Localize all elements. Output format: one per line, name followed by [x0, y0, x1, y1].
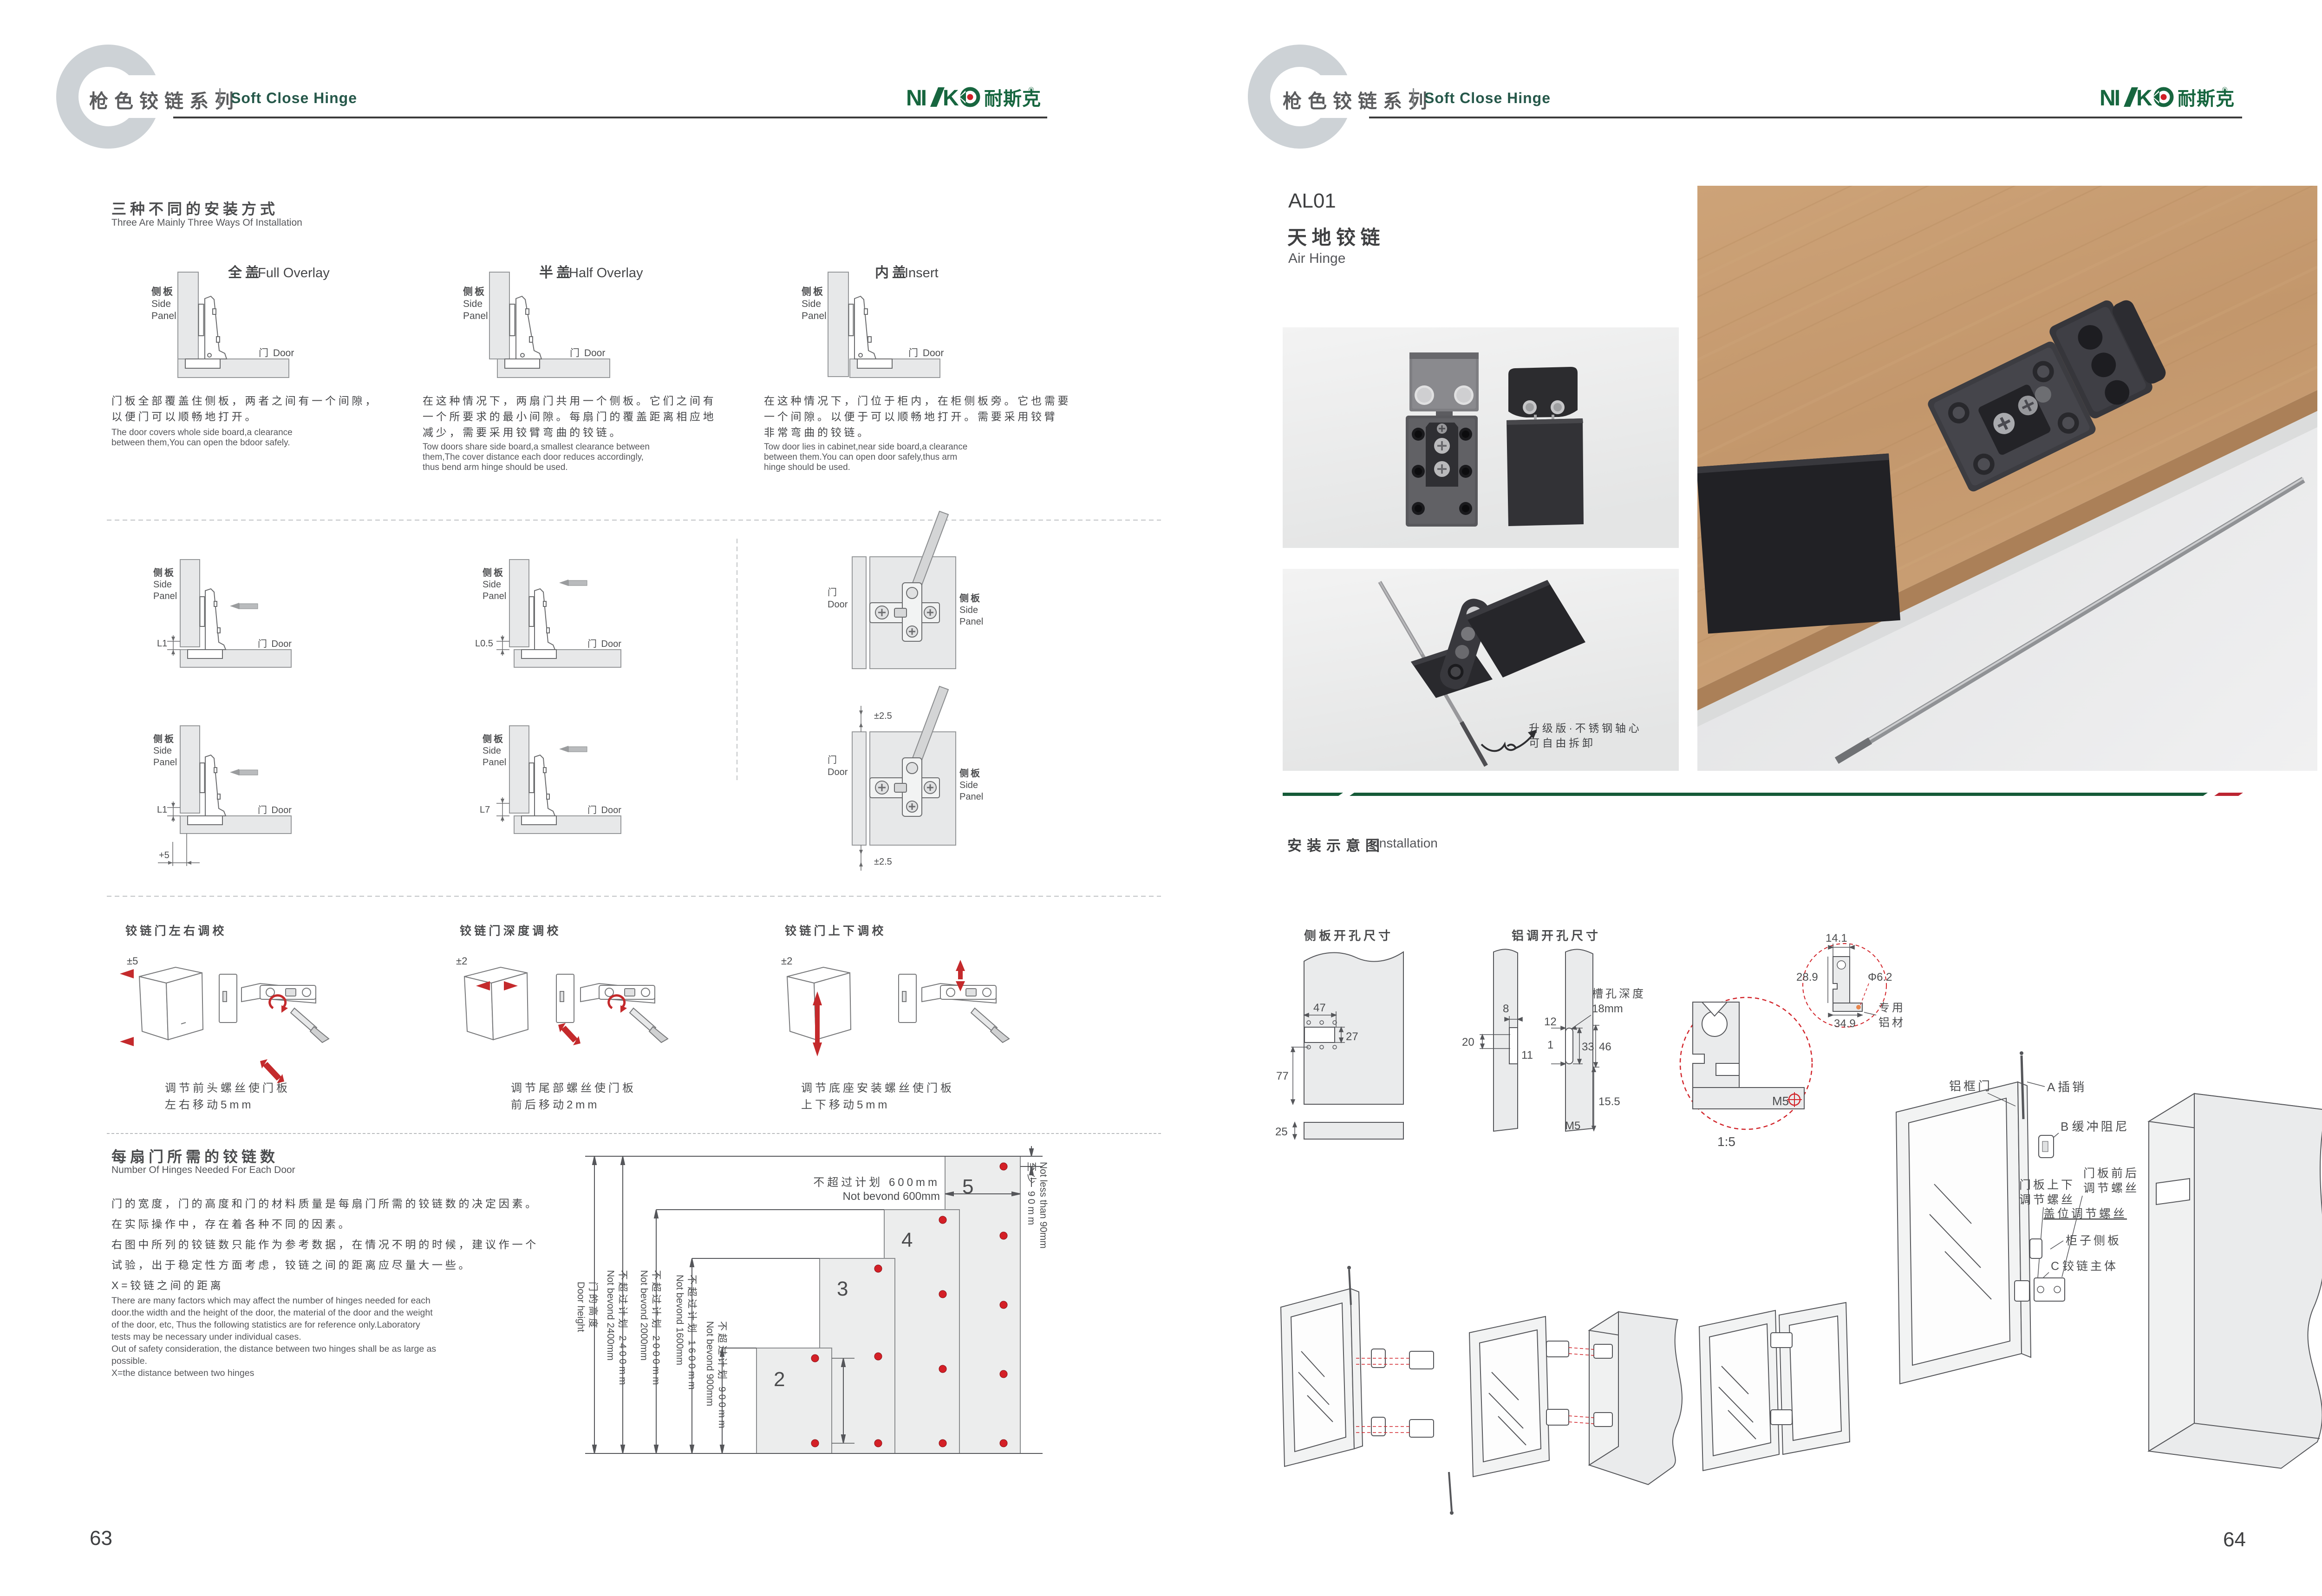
svg-text:不超过计划 2400mm: 不超过计划 2400mm [617, 1270, 628, 1388]
svg-text:门 Door: 门 Door [258, 638, 292, 649]
svg-text:侧板: 侧板 [463, 286, 486, 297]
svg-text:Panel: Panel [802, 311, 827, 321]
svg-text:门 Door: 门 Door [570, 348, 605, 358]
svg-text:不超过计划 2000mm: 不超过计划 2000mm [651, 1270, 661, 1388]
svg-text:半盖: 半盖 [539, 265, 574, 280]
svg-text:28.9: 28.9 [1796, 971, 1818, 984]
svg-text:侧板: 侧板 [153, 733, 176, 744]
svg-text:15.5: 15.5 [1598, 1095, 1620, 1108]
svg-text:1: 1 [1547, 1039, 1553, 1051]
svg-text:®: ® [1029, 86, 1034, 94]
svg-text:Side: Side [802, 299, 821, 309]
svg-text:4: 4 [901, 1229, 913, 1251]
svg-text:Φ6.2: Φ6.2 [1868, 971, 1892, 984]
svg-text:11: 11 [1521, 1049, 1533, 1062]
svg-text:5: 5 [962, 1175, 973, 1198]
svg-text:NI: NI [2100, 86, 2120, 110]
svg-text:门: 门 [828, 755, 839, 765]
svg-text:Panel: Panel [483, 757, 506, 768]
svg-text:A 插销: A 插销 [2047, 1080, 2087, 1094]
svg-text:侧板: 侧板 [959, 593, 982, 604]
svg-text:侧板: 侧板 [483, 733, 505, 744]
svg-text:专用: 专用 [1878, 1002, 1905, 1014]
svg-text:侧板: 侧板 [802, 286, 825, 297]
svg-text:调节螺丝: 调节螺丝 [2019, 1193, 2075, 1206]
svg-text:Side: Side [959, 605, 978, 615]
svg-text:18mm: 18mm [1592, 1003, 1623, 1015]
svg-text:门 Door: 门 Door [587, 805, 621, 815]
svg-text:铝材: 铝材 [1878, 1016, 1905, 1029]
svg-text:1:5: 1:5 [1717, 1134, 1735, 1149]
svg-text:不超过计划 1600mm: 不超过计划 1600mm [686, 1275, 697, 1392]
svg-text:Panel: Panel [151, 311, 176, 321]
svg-text:Insert: Insert [905, 266, 939, 280]
svg-text:±2.5: ±2.5 [874, 857, 892, 867]
svg-text:L7: L7 [480, 805, 490, 815]
svg-text:±5: ±5 [127, 955, 138, 967]
svg-text:K: K [943, 86, 959, 110]
svg-text:调节螺丝: 调节螺丝 [2083, 1182, 2139, 1195]
svg-text:铝框门: 铝框门 [1949, 1079, 1992, 1093]
svg-text:门: 门 [828, 587, 839, 598]
svg-text:±2: ±2 [781, 955, 792, 967]
svg-text:侧板: 侧板 [151, 286, 175, 297]
svg-text:NI: NI [906, 86, 926, 110]
svg-text:®: ® [2222, 86, 2227, 94]
svg-text:Panel: Panel [959, 792, 983, 802]
svg-text:34.9: 34.9 [1834, 1017, 1856, 1030]
svg-text:C 铰链主体: C 铰链主体 [2051, 1260, 2118, 1273]
svg-text:33: 33 [1582, 1041, 1594, 1053]
svg-text:L0.5: L0.5 [475, 638, 493, 649]
svg-text:M5: M5 [1565, 1120, 1580, 1132]
svg-text:Panel: Panel [483, 591, 506, 601]
svg-text:门的高度: 门的高度 [587, 1282, 598, 1330]
svg-text:±2: ±2 [456, 955, 467, 967]
svg-text:Side: Side [151, 299, 171, 309]
svg-text:Side: Side [463, 299, 483, 309]
svg-text:Not bevond 1600mm: Not bevond 1600mm [674, 1275, 685, 1365]
svg-text:46: 46 [1599, 1041, 1611, 1053]
svg-text:Panel: Panel [959, 617, 983, 627]
svg-text:铝调开孔尺寸: 铝调开孔尺寸 [1512, 929, 1601, 943]
svg-text:Side: Side [483, 580, 501, 590]
svg-text:12: 12 [1544, 1016, 1557, 1028]
svg-text:3: 3 [837, 1277, 848, 1300]
svg-text:门 Door: 门 Door [908, 348, 944, 358]
svg-text:Side: Side [483, 746, 501, 756]
svg-text:Full Overlay: Full Overlay [258, 266, 330, 280]
svg-text:门 Door: 门 Door [259, 348, 294, 358]
svg-text:±2.5: ±2.5 [874, 711, 892, 721]
svg-text:侧板开孔尺寸: 侧板开孔尺寸 [1304, 929, 1393, 943]
svg-text:Side: Side [153, 580, 172, 590]
svg-text:Not bevond 2400mm: Not bevond 2400mm [605, 1270, 616, 1361]
svg-text:Not bevond 2000mm: Not bevond 2000mm [639, 1270, 649, 1361]
svg-text:Door: Door [828, 767, 848, 777]
svg-text:侧板: 侧板 [483, 567, 505, 578]
svg-text:门板前后: 门板前后 [2083, 1167, 2139, 1180]
svg-text:侧板: 侧板 [153, 567, 176, 578]
svg-text:柜子侧板: 柜子侧板 [2066, 1234, 2121, 1247]
svg-text:至少 90mm: 至少 90mm [1026, 1162, 1037, 1227]
svg-text:不超过计划 900mm: 不超过计划 900mm [717, 1321, 727, 1431]
svg-text:Not bevond 600mm: Not bevond 600mm [843, 1190, 940, 1203]
svg-text:+5: +5 [159, 850, 170, 860]
svg-text:Side: Side [959, 780, 978, 790]
svg-text:侧板: 侧板 [959, 768, 982, 779]
svg-text:Door: Door [828, 599, 848, 610]
svg-text:Side: Side [153, 746, 172, 756]
svg-text:27: 27 [1346, 1030, 1358, 1043]
svg-text:L1: L1 [157, 638, 167, 649]
svg-text:2: 2 [774, 1368, 785, 1391]
svg-text:25: 25 [1275, 1126, 1288, 1138]
svg-text:槽孔深度: 槽孔深度 [1592, 988, 1646, 1000]
svg-text:Door height: Door height [575, 1282, 586, 1332]
svg-text:不超过计划 600mm: 不超过计划 600mm [813, 1176, 940, 1189]
svg-text:门板上下: 门板上下 [2019, 1179, 2075, 1192]
svg-text:盖位调节螺丝: 盖位调节螺丝 [2043, 1207, 2127, 1220]
svg-text:Half Overlay: Half Overlay [569, 266, 643, 280]
svg-text:Not less than 90mm: Not less than 90mm [1038, 1162, 1049, 1249]
svg-text:Panel: Panel [153, 591, 177, 601]
svg-text:L1: L1 [157, 805, 167, 815]
svg-text:内盖: 内盖 [875, 265, 909, 280]
svg-text:14.1: 14.1 [1826, 932, 1847, 945]
svg-text:Panel: Panel [153, 757, 177, 768]
svg-text:Panel: Panel [463, 311, 488, 321]
svg-text:全盖: 全盖 [228, 265, 262, 280]
svg-text:门 Door: 门 Door [587, 638, 621, 649]
svg-text:8: 8 [1503, 1003, 1509, 1015]
svg-text:20: 20 [1462, 1036, 1474, 1049]
svg-text:B 缓冲阻尼: B 缓冲阻尼 [2061, 1120, 2130, 1133]
svg-text:门 Door: 门 Door [258, 805, 292, 815]
svg-text:Not bevond 900mm: Not bevond 900mm [704, 1321, 715, 1406]
svg-text:K: K [2136, 86, 2152, 110]
svg-text:47: 47 [1313, 1002, 1326, 1014]
svg-text:M5: M5 [1772, 1094, 1789, 1108]
svg-text:77: 77 [1276, 1070, 1289, 1082]
